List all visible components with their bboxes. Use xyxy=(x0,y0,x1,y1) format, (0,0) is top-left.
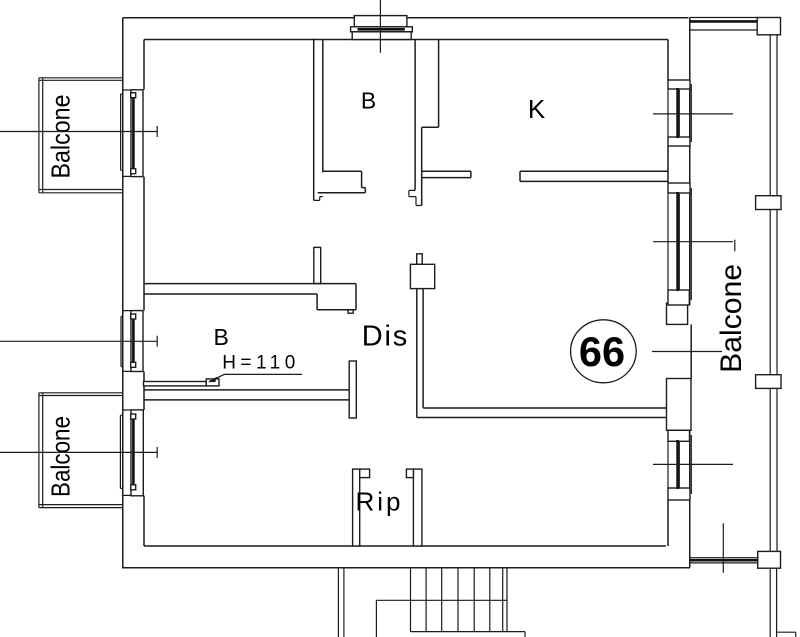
svg-text:B: B xyxy=(214,324,229,350)
svg-text:H=110: H=110 xyxy=(222,353,300,374)
svg-text:Balcone: Balcone xyxy=(46,95,76,179)
svg-text:Rip: Rip xyxy=(355,486,403,516)
svg-text:Dis: Dis xyxy=(362,321,409,353)
svg-text:Balcone: Balcone xyxy=(46,416,76,497)
svg-text:K: K xyxy=(528,94,546,124)
svg-text:Balcone: Balcone xyxy=(715,264,748,373)
svg-text:B: B xyxy=(361,87,376,113)
svg-text:66: 66 xyxy=(579,328,625,375)
